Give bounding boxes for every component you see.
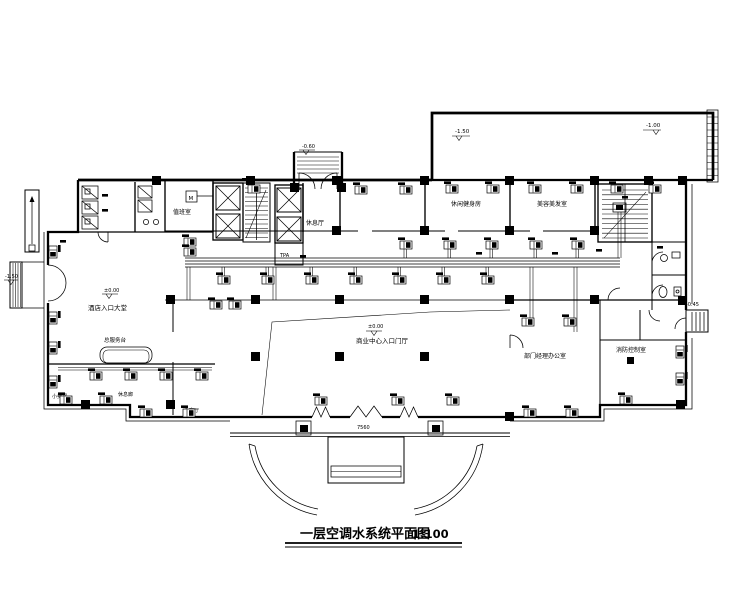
fan-coil-unit-icon [528, 237, 542, 249]
fan-coil-unit-icon [49, 375, 61, 388]
fan-coil-unit-icon [480, 272, 494, 284]
room-label-fire-control: 消防控制室 [616, 346, 646, 354]
column-marker [251, 352, 260, 361]
annotation-blob [242, 178, 248, 181]
elevator-shaft-icon [216, 214, 240, 238]
fan-coil-unit-icon [444, 181, 458, 193]
fan-coil-unit-icon [313, 393, 327, 405]
fan-coil-unit-icon [442, 237, 456, 249]
column-marker [505, 412, 514, 421]
column-marker [152, 176, 161, 185]
fan-coil-unit-icon [445, 393, 459, 405]
fan-steps-arc [415, 444, 483, 515]
column-marker [678, 176, 687, 185]
duty-room: M 值班室 [165, 180, 213, 232]
fan-coil-unit-icon [570, 237, 584, 249]
column-marker [590, 226, 599, 235]
fan-coil-unit-icon [527, 181, 541, 193]
fan-coil-unit-icon [348, 272, 362, 284]
fan-coil-unit-icon [260, 272, 274, 284]
column-marker [678, 296, 687, 305]
fan-coil-unit-icon [520, 314, 534, 326]
room-label-manager: 部门经理办公室 [524, 352, 566, 360]
column-marker [290, 183, 299, 192]
fan-coil-unit-icon [436, 272, 450, 284]
fan-coil-unit-icon [398, 237, 412, 249]
elevator-core-b: TPA [275, 185, 303, 265]
column-marker [251, 295, 260, 304]
annotation-blob [657, 246, 663, 249]
fan-coil-unit-icon [522, 405, 536, 417]
column-marker [420, 226, 429, 235]
double-door-icon [312, 407, 330, 417]
elevation-lobby: ±0.00 [104, 288, 119, 294]
duty-box-label: M [189, 196, 194, 202]
fan-coil-unit-icon [484, 237, 498, 249]
column-marker [505, 176, 514, 185]
fan-coil-unit-icon [390, 393, 404, 405]
room-label-lobby: 酒店入口大堂 [88, 303, 128, 312]
column-marker [590, 176, 599, 185]
fan-coil-unit-icon [227, 297, 241, 309]
room-label-service-desk: 总服务台 [104, 336, 127, 344]
elevator-shaft-icon [277, 217, 301, 241]
room-label-beauty: 美容美发室 [537, 200, 567, 208]
annotation-blob [102, 194, 108, 197]
annotation-blob [60, 240, 66, 243]
fan-coil-unit-icon [485, 181, 499, 193]
column-marker [335, 295, 344, 304]
fan-coil-unit-icon [353, 182, 367, 194]
left-exterior: -1.50 [4, 190, 44, 308]
column-marker [505, 226, 514, 235]
room-label-fitness: 休闲健身房 [451, 200, 481, 208]
fan-coil-unit-icon [49, 311, 61, 324]
room-label-hall: 商业中心入口门厅 [356, 336, 409, 345]
elevator-core-a [213, 183, 270, 242]
elevation-left-steps: -1.50 [5, 274, 18, 280]
fan-coil-unit-icon [58, 392, 72, 404]
fan-coil-unit-icon [564, 405, 578, 417]
fan-coil-unit-icon [138, 405, 152, 417]
column-marker [332, 226, 341, 235]
annotation-blob [552, 252, 558, 255]
fan-coil-unit-icon [392, 272, 406, 284]
column-marker [166, 400, 175, 409]
elevation-triangle-icon [456, 136, 462, 141]
terrace-roof: -1.50 -1.00 [432, 110, 718, 182]
ramp-arrow-icon [30, 196, 35, 202]
toilet-block [78, 180, 165, 242]
fan-steps-arc [249, 444, 317, 515]
chilled-water-pipes [58, 203, 626, 370]
annotation-blob [476, 252, 482, 255]
column-marker [332, 176, 341, 185]
fan-coil-unit-icon [98, 392, 112, 404]
service-counter [100, 347, 152, 363]
elevation-triangle-icon [653, 130, 659, 135]
elevation-triangle-icon [106, 294, 112, 299]
fan-steps-arc [255, 446, 318, 509]
columns-layer [81, 176, 687, 421]
room-label-duty: 值班室 [173, 208, 191, 216]
manager-office: 部门经理办公室 [510, 335, 566, 360]
elevation-triangle-icon [371, 331, 377, 336]
floor-plan-canvas: -1.50 -1.00 7560 M 值班室 [0, 0, 750, 598]
entry-steps [297, 157, 339, 173]
fan-coil-unit-icon [609, 181, 623, 193]
fan-coil-unit-icon [49, 341, 61, 354]
fan-coil-unit-icon [647, 181, 661, 193]
fan-coil-unit-icon [569, 181, 583, 193]
entrance-porch: 7560 [230, 421, 510, 515]
fan-coil-unit-icon [304, 272, 318, 284]
column-marker [335, 352, 344, 361]
double-door-icon [350, 406, 382, 417]
double-door-icon [400, 407, 418, 417]
column-marker [420, 176, 429, 185]
column-marker [81, 400, 90, 409]
room-label-lounge: 休息廊 [118, 391, 133, 398]
elevation-hall: ±0.00 [368, 324, 383, 330]
lobby: 酒店入口大堂 ±0.00 总服务台 小卖部 休息廊 会客厅 [48, 288, 215, 414]
column-marker [676, 400, 685, 409]
entry-steps [13, 263, 21, 307]
elevation-terrace-right: -1.00 [646, 123, 661, 129]
elevation-side-entrance: -0.45 [686, 302, 699, 308]
porch-dimension: 7560 [357, 425, 370, 431]
elevator-shaft-icon [216, 186, 240, 210]
entrance-door-arc [48, 265, 66, 301]
annotation-blob [102, 209, 108, 212]
fan-coil-unit-icon [49, 245, 61, 258]
annotation-blob [596, 249, 602, 252]
column-marker [505, 295, 514, 304]
drawing-scale: 1:100 [412, 527, 449, 541]
elevation-terrace-left: -1.50 [455, 129, 470, 135]
fan-coil-unit-icon [182, 234, 196, 246]
fan-coil-unit-icon [398, 182, 412, 194]
door-arc [510, 335, 523, 348]
annotation-blob [300, 255, 306, 258]
cad-drawing-page: -1.50 -1.00 7560 M 值班室 [0, 0, 750, 598]
annotation-blob [622, 196, 628, 199]
fan-coil-unit-icon [208, 297, 222, 309]
drawing-title: 一层空调水系统平面图 [300, 526, 430, 542]
fan-coil-unit-icon [216, 272, 230, 284]
column-marker [166, 295, 175, 304]
fan-coil-unit-icon [618, 392, 632, 404]
elevation-vestibule: -0.60 [302, 144, 315, 150]
column-marker [420, 352, 429, 361]
room-label-rest: 休息厅 [306, 219, 324, 227]
column-marker [590, 295, 599, 304]
fire-control-room: 消防控制室 [616, 346, 646, 364]
column-marker [420, 295, 429, 304]
fan-steps-arc [414, 446, 477, 509]
title-block: 一层空调水系统平面图 1:100 [285, 526, 462, 547]
